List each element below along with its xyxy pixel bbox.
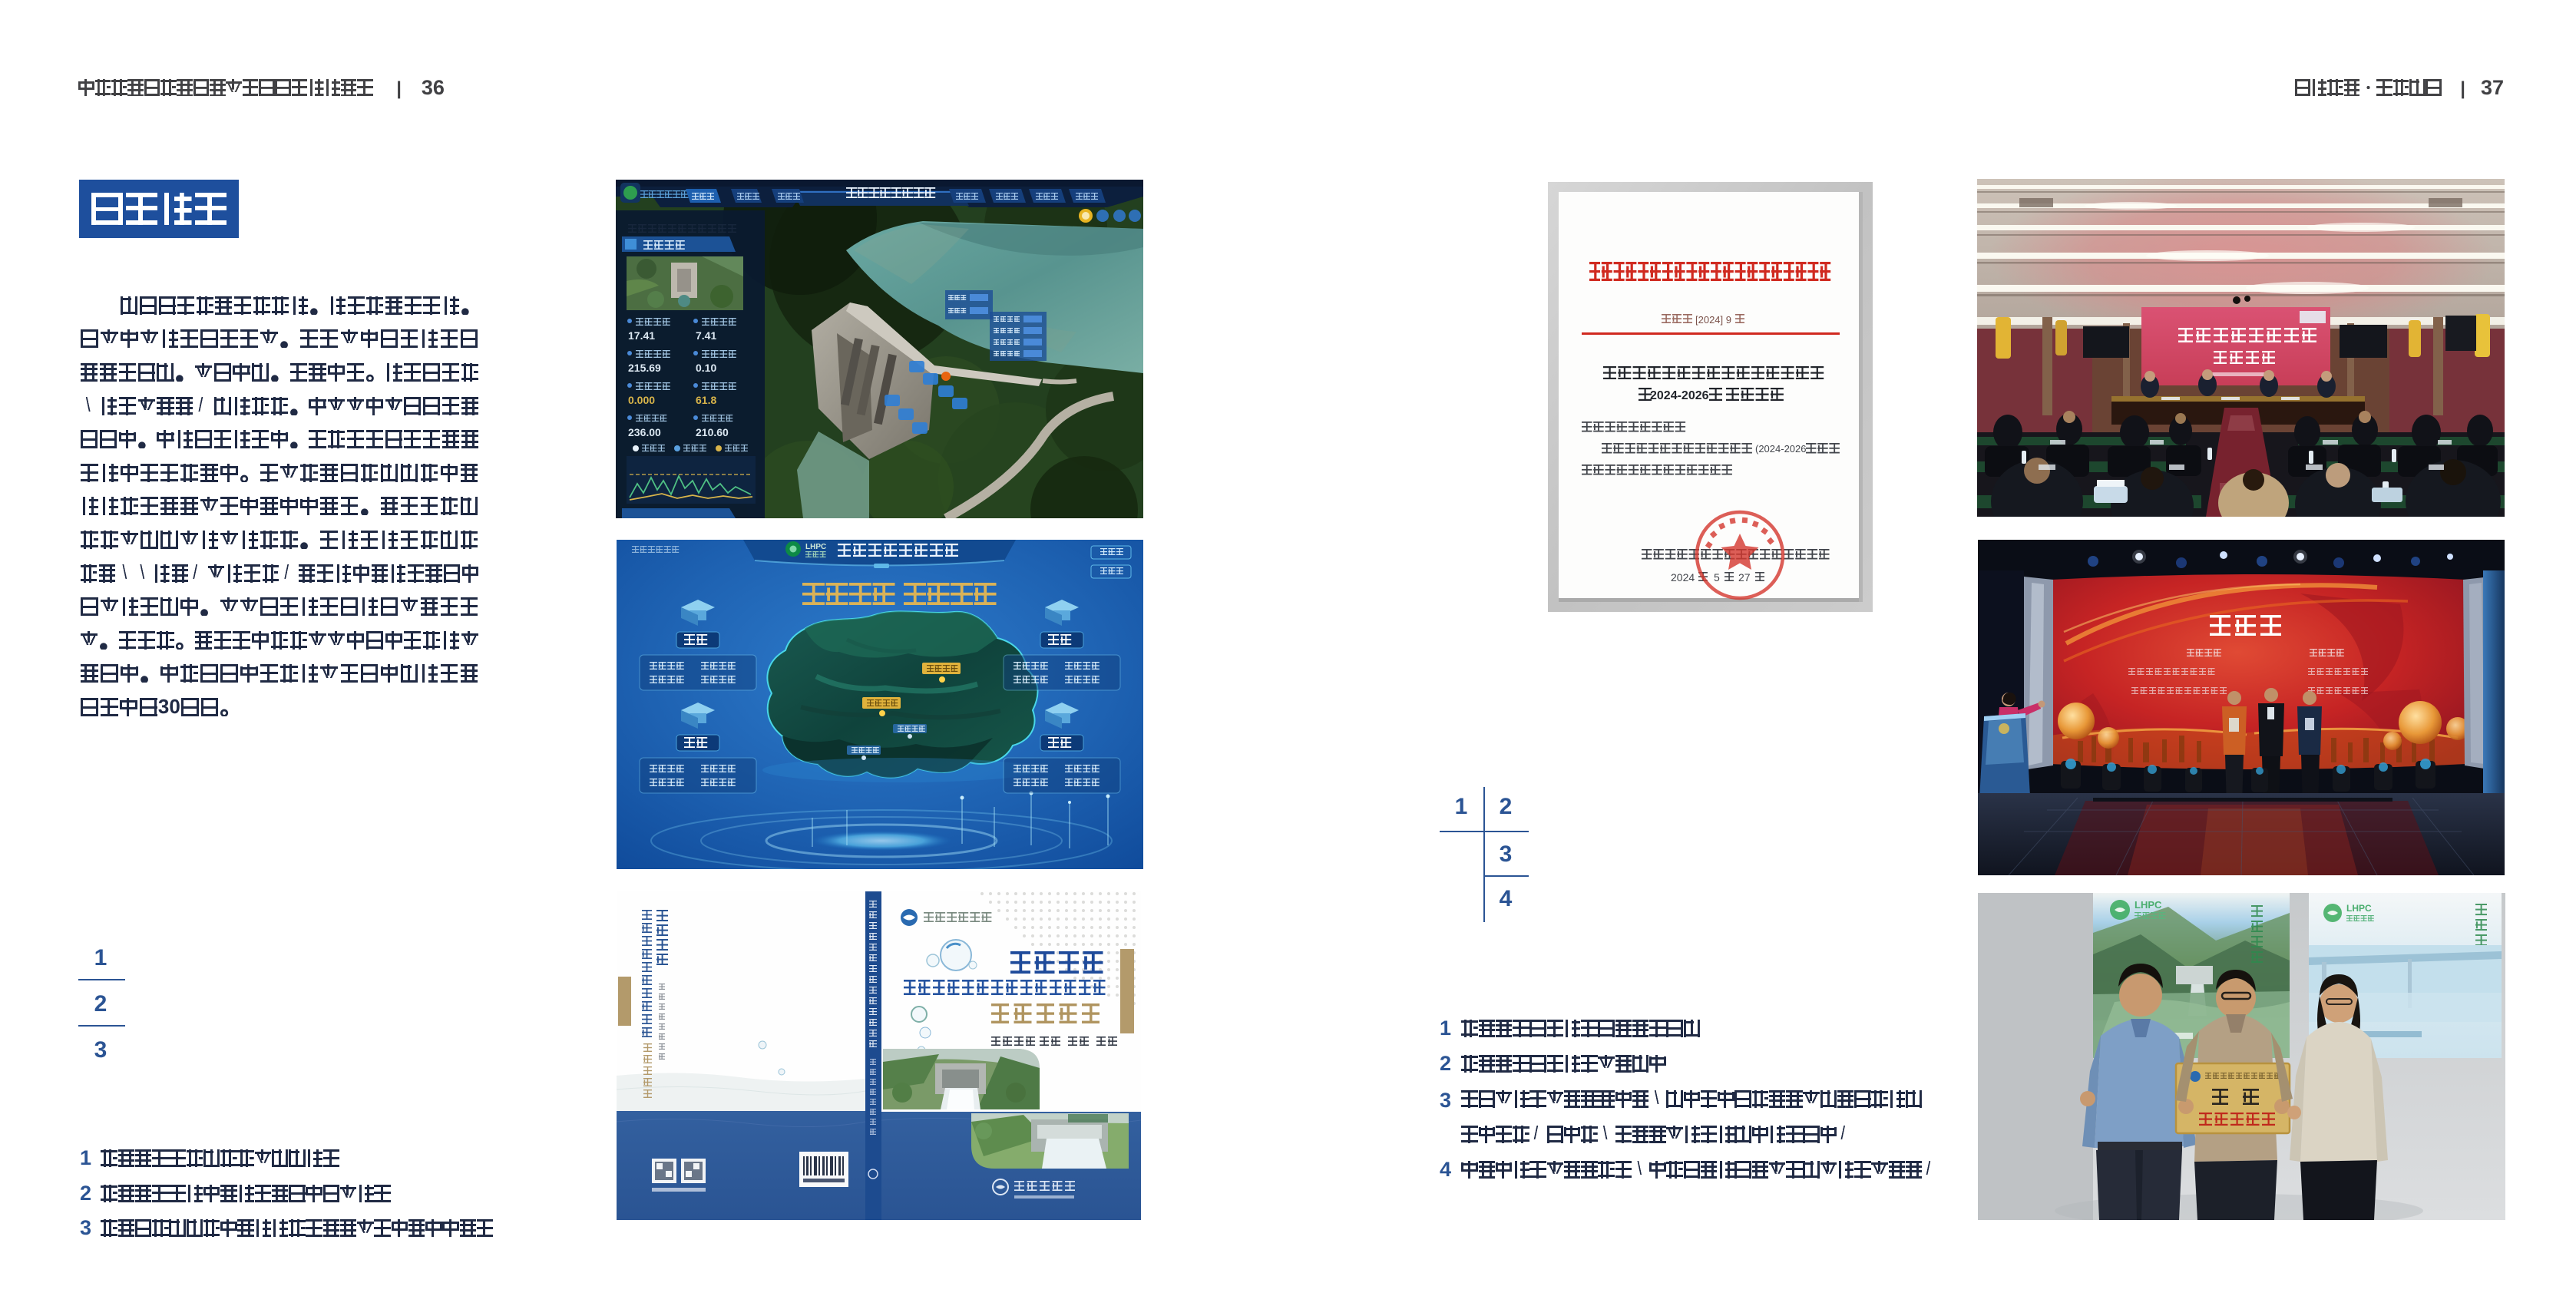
svg-text:(2024-2026: (2024-2026 <box>1755 443 1807 455</box>
svg-text:LHPC: LHPC <box>2135 899 2162 911</box>
svg-text:17.41: 17.41 <box>628 329 655 342</box>
svg-text:3: 3 <box>94 1037 107 1063</box>
svg-text:3: 3 <box>1500 841 1513 867</box>
svg-text:4: 4 <box>1500 886 1513 911</box>
svg-text:1: 1 <box>94 945 107 970</box>
svg-text:2: 2 <box>94 991 107 1017</box>
svg-text:LHPC: LHPC <box>805 543 826 551</box>
svg-text:215.69: 215.69 <box>628 362 661 374</box>
svg-text:236.00: 236.00 <box>628 426 661 438</box>
svg-text:2024: 2024 <box>1671 571 1695 584</box>
svg-text:7.41: 7.41 <box>696 329 716 342</box>
svg-text:61.8: 61.8 <box>696 394 716 406</box>
svg-text:LHPC: LHPC <box>2346 903 2372 914</box>
svg-text:5: 5 <box>1714 571 1720 584</box>
svg-text:27: 27 <box>1738 571 1751 584</box>
svg-text:1: 1 <box>1455 794 1468 819</box>
svg-text:[2024] 9: [2024] 9 <box>1695 314 1731 326</box>
svg-text:210.60: 210.60 <box>696 426 729 438</box>
svg-text:0.10: 0.10 <box>696 362 716 374</box>
svg-text:0.000: 0.000 <box>628 394 655 406</box>
svg-text:2: 2 <box>1500 794 1513 819</box>
svg-text:2024-2026: 2024-2026 <box>1650 389 1709 402</box>
